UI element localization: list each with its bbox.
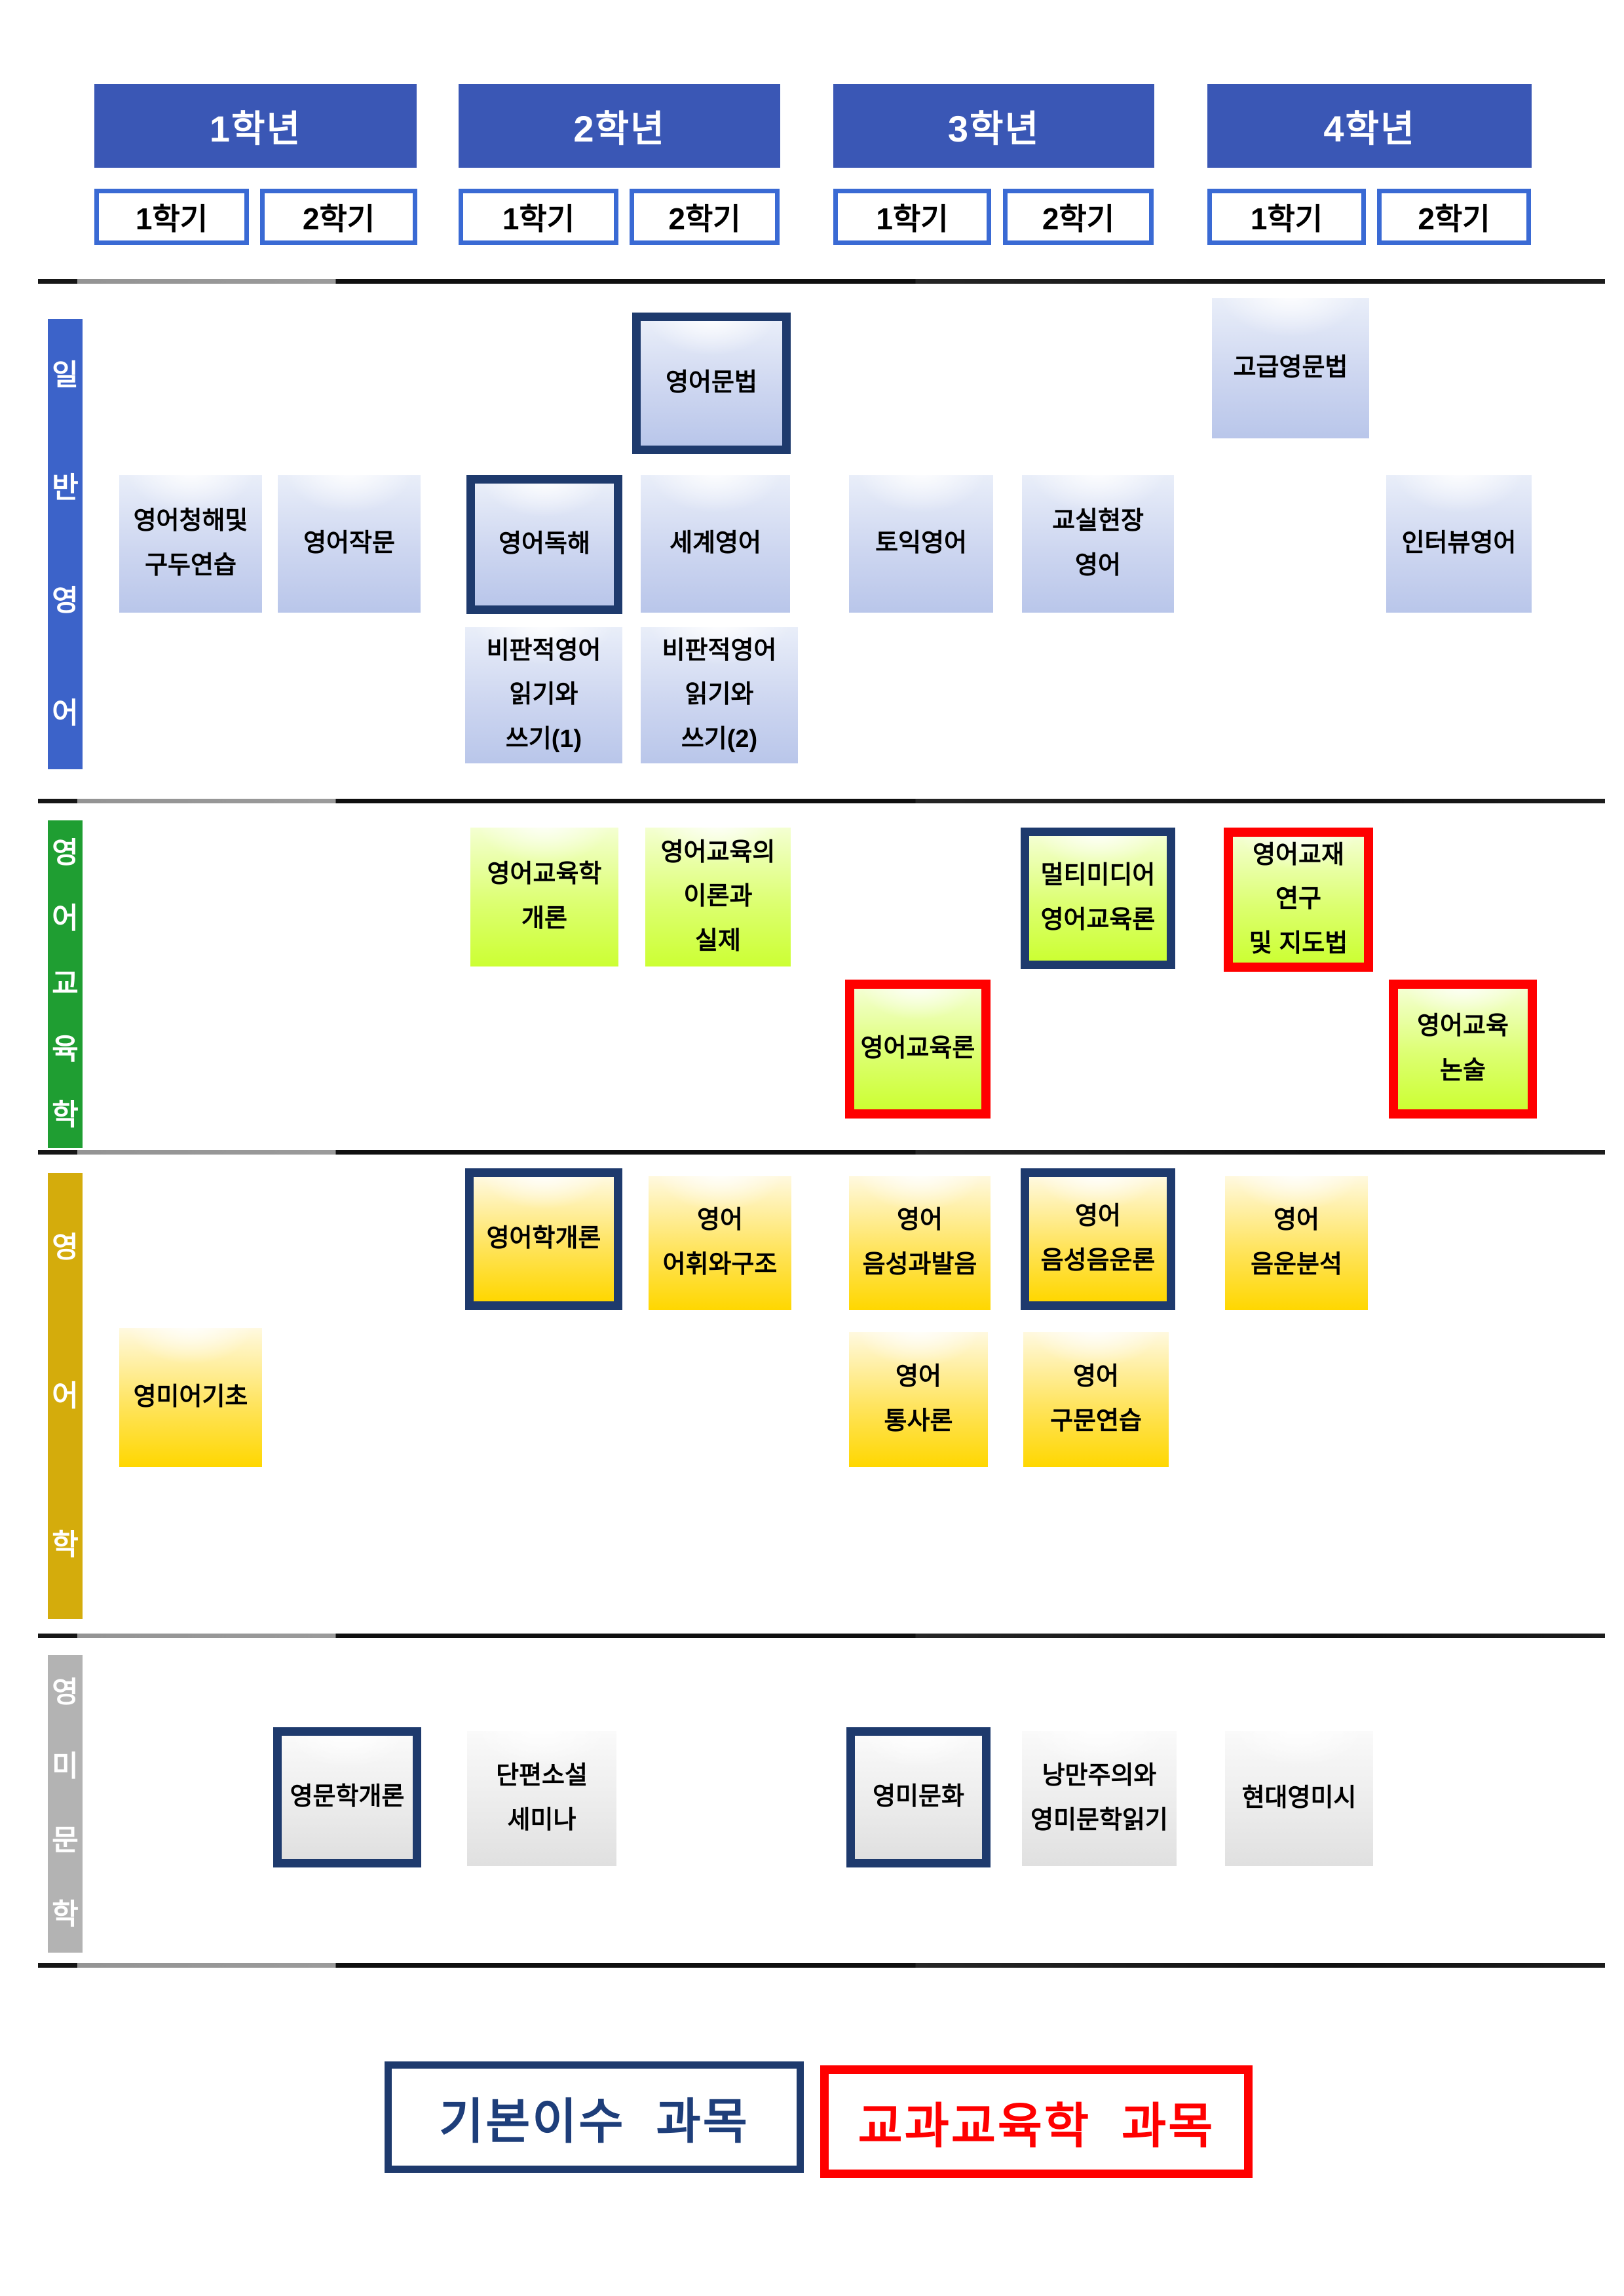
section-bar-english-linguistics: 영어학: [48, 1173, 83, 1619]
course-elt-theory: 영어교육론: [845, 980, 991, 1119]
course-structure-practice: 영어 구문연습: [1023, 1332, 1169, 1467]
course-english-reading: 영어독해: [466, 475, 622, 614]
legend-basic-required-courses: 기본이수 과목: [385, 2061, 804, 2173]
year-header-3: 3학년: [833, 84, 1154, 168]
semester-header-y3s1: 1학기: [833, 189, 991, 245]
course-critical-english-rw1: 비판적영어 읽기와 쓰기(1): [465, 627, 622, 763]
curriculum-diagram: 1학년 2학년 3학년 4학년 1학기 2학기 1학기 2학기 1학기 2학기 …: [0, 0, 1624, 2296]
course-multimedia-elt: 멀티미디어 영어교육론: [1021, 828, 1175, 969]
course-critical-english-rw2: 비판적영어 읽기와 쓰기(2): [641, 627, 798, 763]
course-elt-essay: 영어교육 논술: [1389, 980, 1537, 1119]
year-header-4: 4학년: [1207, 84, 1532, 168]
section-bar-english-education: 영어교육학: [48, 820, 83, 1148]
semester-header-y4s2: 2학기: [1377, 189, 1531, 245]
semester-header-y4s1: 1학기: [1207, 189, 1366, 245]
course-british-american-culture: 영미문화: [846, 1727, 991, 1867]
year-header-2: 2학년: [459, 84, 780, 168]
course-elt-theory-practice: 영어교육의 이론과 실제: [645, 828, 791, 966]
legend-subject-pedagogy-courses: 교과교육학 과목: [820, 2065, 1253, 2178]
course-romanticism-reading: 낭만주의와 영미문학읽기: [1022, 1731, 1177, 1866]
course-world-english: 세계영어: [641, 475, 790, 613]
divider-line-5: [38, 1963, 1605, 1968]
divider-line-2: [38, 799, 1605, 803]
divider-line-1: [38, 279, 1605, 284]
course-linguistics-introduction: 영어학개론: [465, 1168, 622, 1310]
semester-header-y2s1: 1학기: [459, 189, 618, 245]
semester-header-y3s2: 2학기: [1003, 189, 1154, 245]
divider-line-4: [38, 1634, 1605, 1638]
course-modern-poetry: 현대영미시: [1225, 1731, 1373, 1866]
course-english-grammar: 영어문법: [632, 313, 791, 454]
divider-line-3: [38, 1150, 1605, 1155]
semester-header-y1s1: 1학기: [94, 189, 249, 245]
year-header-1: 1학년: [94, 84, 417, 168]
semester-header-y1s2: 2학기: [260, 189, 417, 245]
course-classroom-english: 교실현장 영어: [1022, 475, 1174, 613]
course-listening-oral-practice: 영어청해및 구두연습: [119, 475, 262, 613]
course-english-composition: 영어작문: [278, 475, 421, 613]
course-interview-english: 인터뷰영어: [1386, 475, 1532, 613]
course-toeic-english: 토익영어: [849, 475, 993, 613]
semester-header-y2s2: 2학기: [630, 189, 780, 245]
course-vocabulary-structure: 영어 어휘와구조: [649, 1176, 791, 1310]
course-phonetics-phonology: 영어 음성음운론: [1021, 1168, 1175, 1310]
course-english-literature-introduction: 영문학개론: [273, 1727, 421, 1867]
course-phonology-analysis: 영어 음운분석: [1225, 1176, 1368, 1310]
course-short-story-seminar: 단편소설 세미나: [467, 1731, 616, 1866]
course-syntax: 영어 통사론: [849, 1332, 988, 1467]
course-phonetics-pronunciation: 영어 음성과발음: [849, 1176, 991, 1310]
section-bar-english-literature: 영미문학: [48, 1655, 83, 1953]
section-bar-general-english: 일반영어: [48, 319, 83, 769]
course-advanced-english-grammar: 고급영문법: [1212, 298, 1369, 438]
course-materials-and-methods: 영어교재 연구 및 지도법: [1224, 828, 1373, 972]
course-english-basics: 영미어기초: [119, 1328, 262, 1467]
course-elt-introduction: 영어교육학 개론: [470, 828, 618, 966]
